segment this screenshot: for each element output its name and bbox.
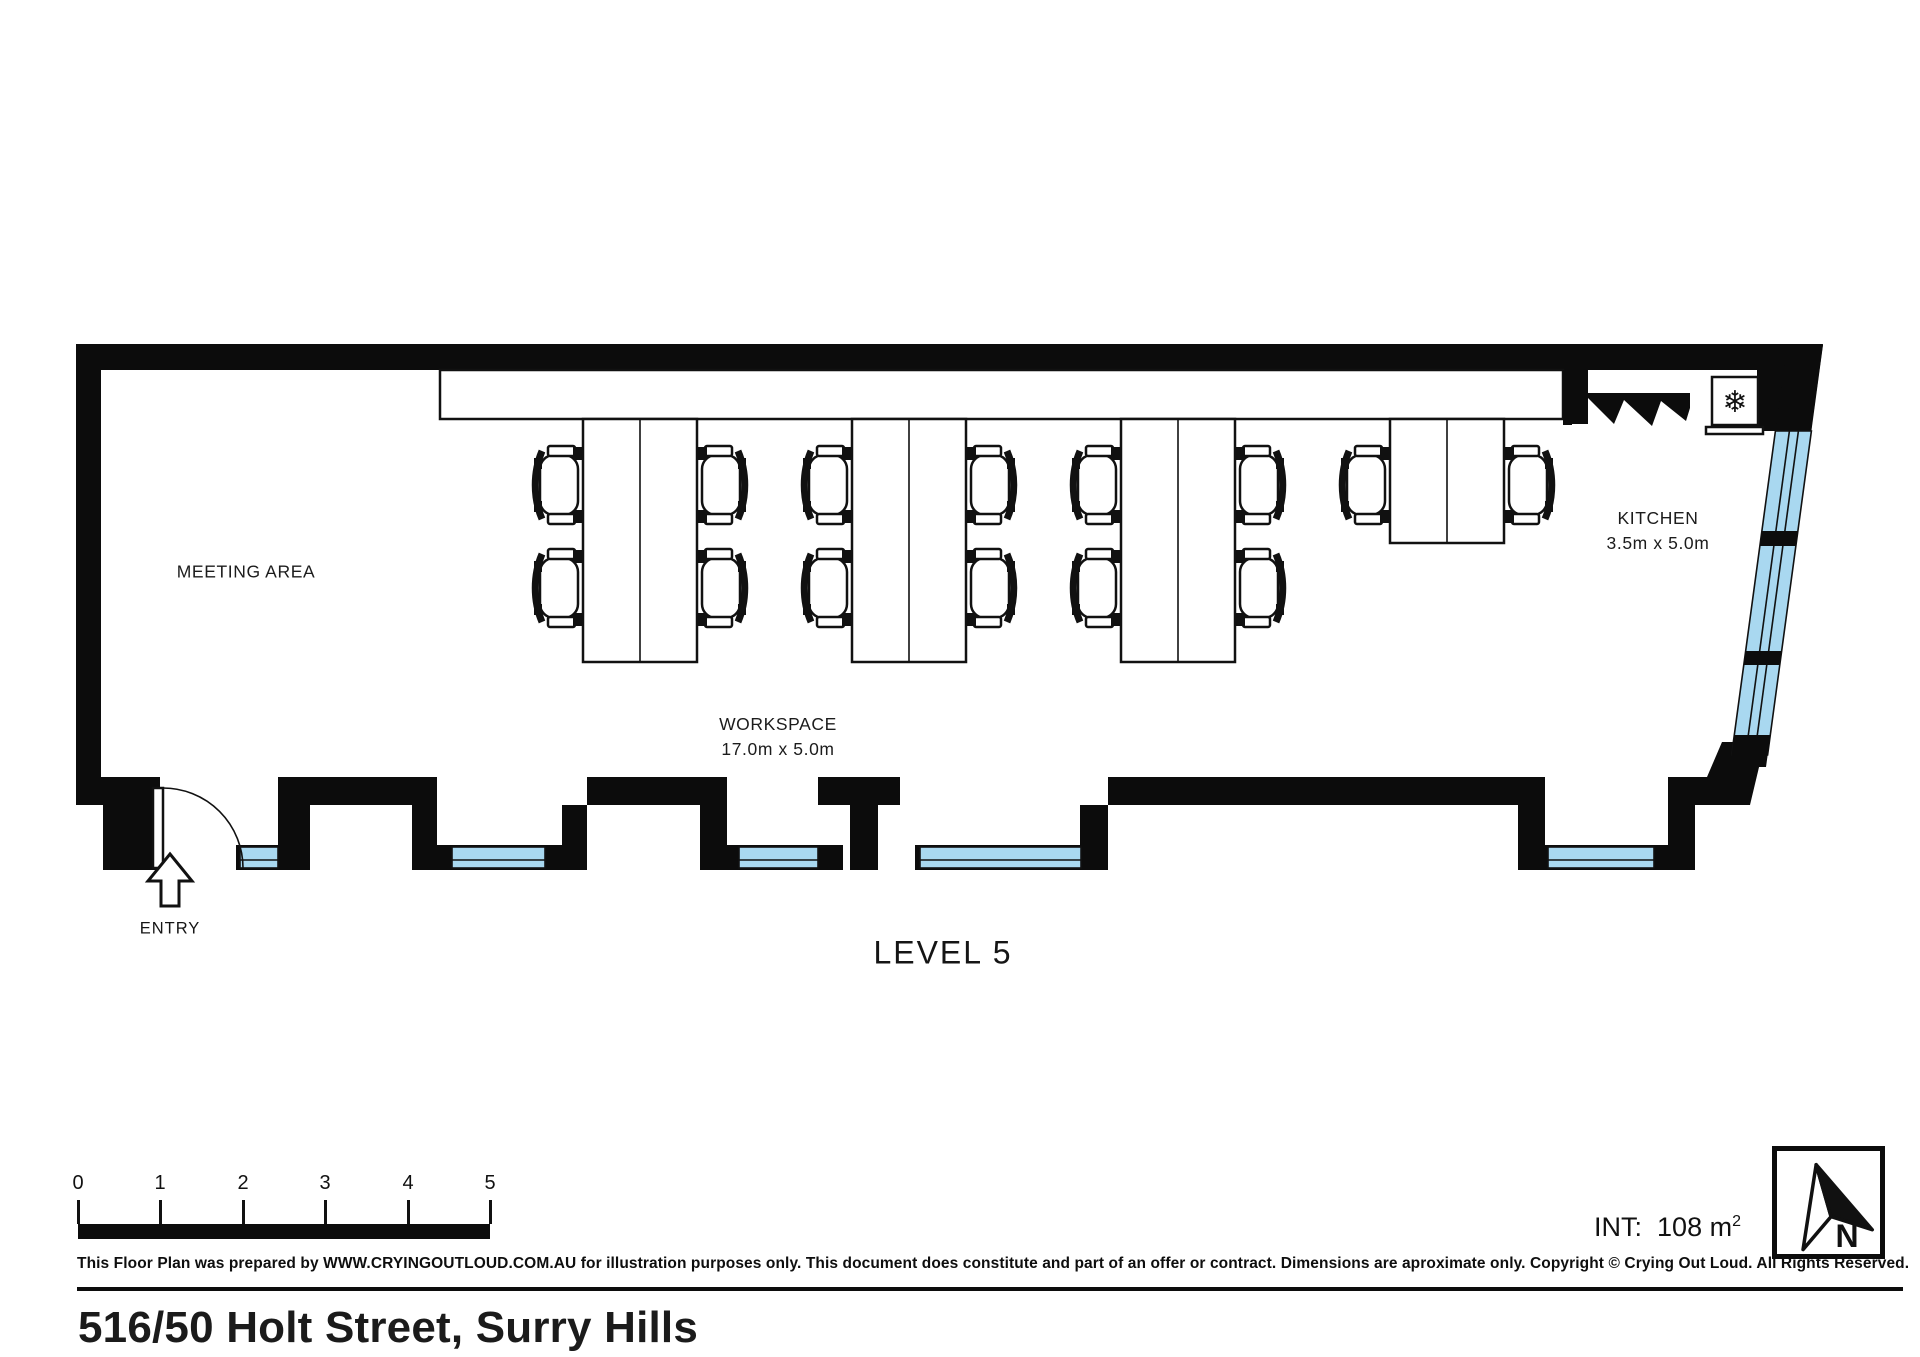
window-1 [452, 847, 545, 868]
address-title: 516/50 Holt Street, Surry Hills [78, 1303, 698, 1353]
scale-bar-body [78, 1224, 490, 1239]
wall-left [76, 344, 101, 805]
window-entry-side [240, 847, 278, 868]
window-4 [1548, 847, 1654, 868]
scale-tick [489, 1200, 492, 1224]
level-label: LEVEL 5 [873, 935, 1012, 972]
office-chair-icon [1341, 446, 1389, 524]
scale-number: 0 [72, 1172, 83, 1195]
bottom-windows [240, 847, 1654, 868]
workspace-name: WORKSPACE [719, 712, 837, 737]
scale-tick [77, 1200, 80, 1224]
floor-plan-svg: ❄ [0, 0, 1920, 1357]
scale-number: 5 [484, 1172, 495, 1195]
scale-number: 4 [402, 1172, 413, 1195]
kitchen-name: KITCHEN [1607, 506, 1710, 531]
scale-number: 1 [154, 1172, 165, 1195]
window-right-band [1732, 431, 1812, 755]
disclaimer-text: This Floor Plan was prepared by WWW.CRYI… [77, 1255, 1909, 1273]
divider-rule [77, 1287, 1903, 1291]
north-label: N [1835, 1218, 1858, 1254]
entry-label: ENTRY [140, 920, 201, 939]
scale-tick [242, 1200, 245, 1224]
office-chair-icon [803, 549, 851, 627]
window-2 [739, 847, 818, 868]
area-text: INT: 108 m2 [1594, 1212, 1741, 1243]
office-chair-icon [698, 446, 746, 524]
workspace-dimensions: 17.0m x 5.0m [719, 737, 837, 762]
door-leaf [153, 788, 163, 868]
scale-tick [324, 1200, 327, 1224]
office-chair-icon [1072, 549, 1120, 627]
office-chair-icon [698, 549, 746, 627]
workstations [534, 419, 1553, 662]
office-chair-icon [534, 446, 582, 524]
kitchen-label: KITCHEN 3.5m x 5.0m [1607, 506, 1710, 556]
scale-tick [159, 1200, 162, 1224]
area-superscript: 2 [1732, 1213, 1741, 1230]
office-chair-icon [967, 446, 1015, 524]
north-arrow-box: N [1772, 1146, 1885, 1259]
snowflake-icon: ❄ [1722, 386, 1747, 419]
sawtooth-break-icon [1570, 370, 1690, 426]
kitchen-dimensions: 3.5m x 5.0m [1607, 531, 1710, 556]
scale-number: 3 [319, 1172, 330, 1195]
area-value: 108 m [1657, 1212, 1732, 1242]
office-chair-icon [967, 549, 1015, 627]
office-chair-icon [1236, 446, 1284, 524]
workspace-label: WORKSPACE 17.0m x 5.0m [719, 712, 837, 762]
window-3 [920, 847, 1081, 868]
scale-tick [407, 1200, 410, 1224]
fridge-icon: ❄ [1706, 377, 1763, 434]
office-chair-icon [1236, 549, 1284, 627]
office-chair-icon [1072, 446, 1120, 524]
office-chair-icon [534, 549, 582, 627]
meeting-area-label: MEETING AREA [177, 560, 315, 585]
north-arrow-icon: N [1777, 1151, 1880, 1254]
scale-number: 2 [237, 1172, 248, 1195]
office-chair-icon [1505, 446, 1553, 524]
window-mullion-2 [1744, 651, 1782, 665]
bench-counter [440, 370, 1572, 425]
window-mullion-1 [1760, 531, 1798, 546]
door-swing-arc [163, 788, 243, 868]
area-label: INT: [1594, 1212, 1642, 1242]
office-chair-icon [803, 446, 851, 524]
